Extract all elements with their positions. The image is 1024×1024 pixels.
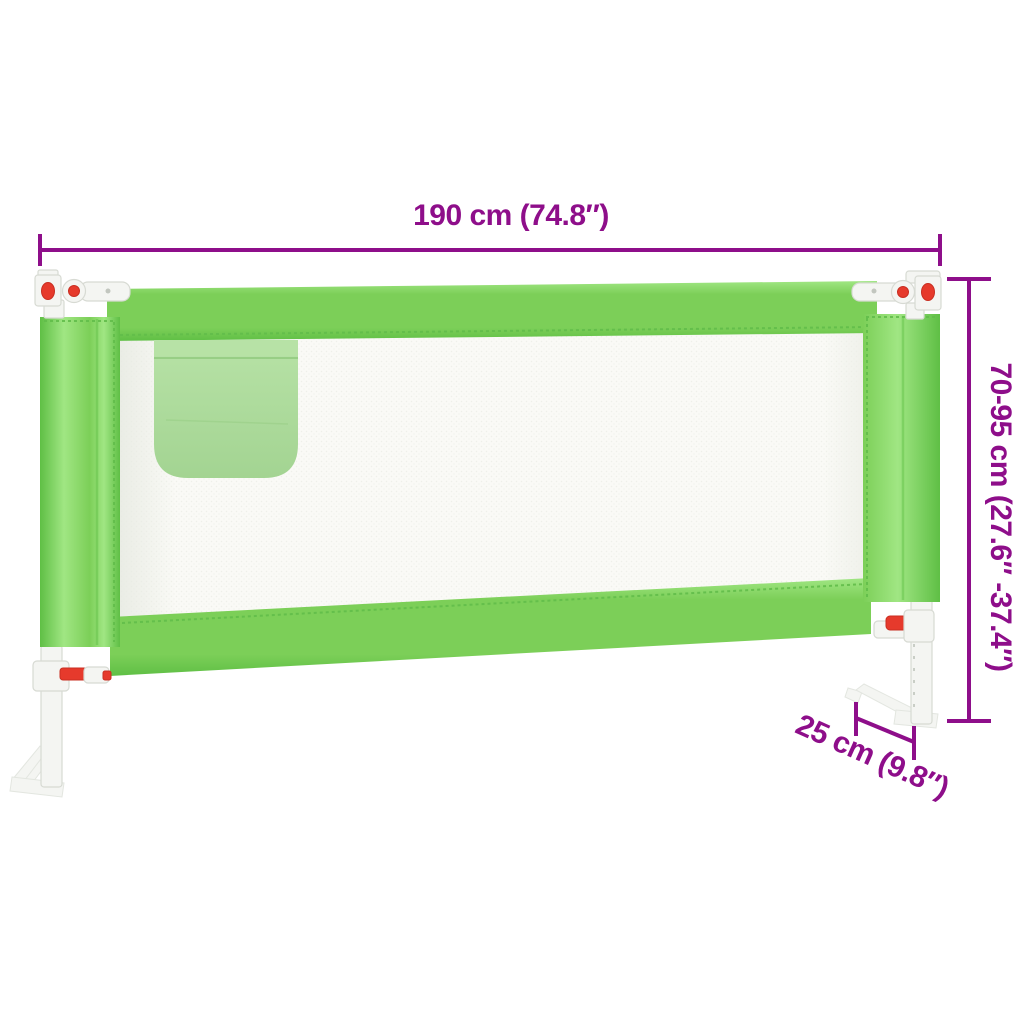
screw <box>872 289 877 294</box>
height-dimension-label: 70-95 cm (27.6″ -37.4″) <box>985 362 1015 671</box>
pocket-top-band <box>154 340 298 356</box>
left-leg-latch <box>60 668 87 680</box>
left-knob-red-dot <box>69 286 80 297</box>
screw <box>106 289 111 294</box>
left-clamp-red-button <box>42 283 55 300</box>
right-fabric-panel <box>863 314 940 602</box>
top-rail-bar <box>107 281 877 341</box>
width-dimension-label: 190 cm (74.8″) <box>413 201 609 231</box>
right-clamp-red-button <box>922 284 935 301</box>
left-fabric-panel <box>40 317 120 647</box>
product-dimension-diagram: 190 cm (74.8″) 70-95 cm (27.6″ -37.4″) 2… <box>0 0 1024 1024</box>
left-clamp-arm <box>80 282 130 301</box>
width-dimension-line <box>40 234 940 266</box>
right-knob-red-dot <box>898 287 909 298</box>
bed-rail-illustration <box>0 0 1024 1024</box>
left-leg <box>10 645 111 797</box>
storage-pocket <box>154 340 298 478</box>
